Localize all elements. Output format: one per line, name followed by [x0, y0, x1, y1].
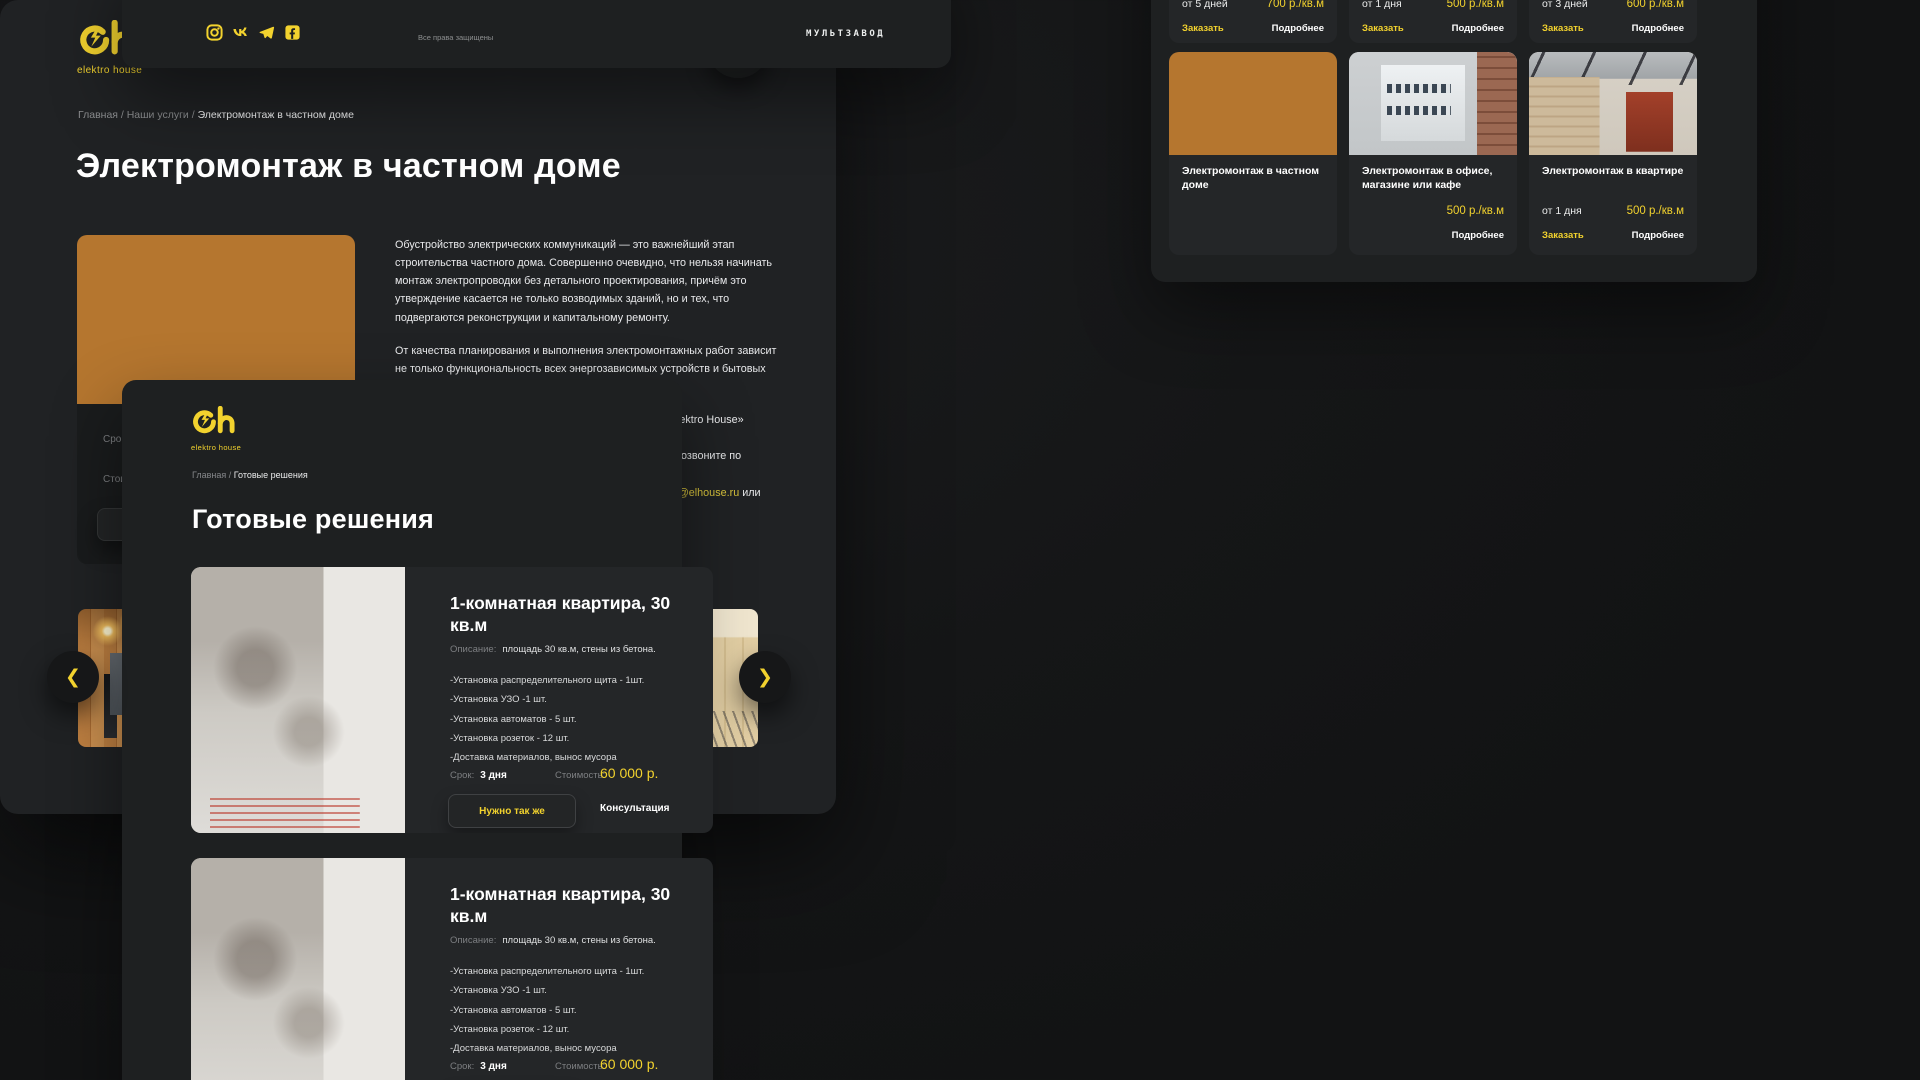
order-link[interactable]: Заказать — [1362, 23, 1404, 34]
price-text: 500 р./кв.м — [1447, 205, 1504, 217]
feature-item: -Установка автоматов - 5 шт. — [450, 1001, 644, 1020]
term-text: от 1 дня — [1542, 205, 1582, 217]
details-link[interactable]: Подробнее — [1272, 23, 1324, 34]
agency-credit[interactable]: МУЛЬТЗАВОД — [806, 29, 885, 39]
solution-title: 1-комнатная квартира, 30 кв.м — [450, 593, 690, 637]
feature-item: -Установка УЗО -1 шт. — [450, 690, 644, 709]
photo-apartment-renovation — [191, 858, 405, 1080]
price-label: Стоимость: — [555, 1061, 605, 1072]
photo-private-house — [1169, 52, 1337, 155]
logo-eh-icon — [191, 406, 239, 436]
feature-item: -Установка розеток - 12 шт. — [450, 729, 644, 748]
order-link[interactable]: Заказать — [1542, 230, 1584, 241]
price-value: 60 000 р. — [600, 1056, 658, 1072]
logo-wordmark: elektro house — [191, 443, 241, 452]
term-text: от 1 дня — [1362, 0, 1402, 10]
chevron-left-icon: ❮ — [65, 666, 81, 689]
vk-icon[interactable] — [232, 24, 249, 41]
instagram-icon[interactable] — [206, 24, 223, 41]
breadcrumb: Главная / Наши услуги / Электромонтаж в … — [78, 109, 354, 121]
photo-apartment — [1529, 52, 1697, 155]
feature-item: -Установка УЗО -1 шт. — [450, 981, 644, 1000]
consultation-button[interactable]: Консультация — [600, 803, 669, 814]
term-text: от 3 дней — [1542, 0, 1588, 10]
service-card-apartment[interactable]: Электромонтаж в квартире от 1 дня500 р./… — [1529, 52, 1697, 255]
breadcrumb: Главная / Готовые решения — [192, 470, 308, 480]
service-price-card: от 3 дней600 р./кв.м ЗаказатьПодробнее — [1529, 0, 1697, 43]
price-text: 500 р./кв.м — [1627, 205, 1684, 217]
price-text: 600 р./кв.м — [1627, 0, 1684, 10]
service-card-title: Электромонтаж в частном доме — [1182, 165, 1324, 192]
carousel-next-button[interactable]: ❯ — [739, 651, 791, 703]
footer-panel: elektro house Все права защищены МУЛЬТЗА… — [122, 0, 951, 68]
term-row: Срок:3 дня — [450, 1061, 507, 1072]
social-links — [206, 24, 301, 41]
page-title: Электромонтаж в частном доме — [76, 147, 621, 186]
breadcrumb-links[interactable]: Главная / Наши услуги / — [78, 109, 195, 121]
service-price-card: от 1 дня500 р./кв.м ЗаказатьПодробнее — [1349, 0, 1517, 43]
breadcrumb-current: Готовые решения — [234, 470, 308, 480]
term-text: от 5 дней — [1182, 0, 1228, 10]
need-same-button[interactable]: Нужно так же — [448, 794, 576, 828]
term-row: Срок:3 дня — [450, 770, 507, 781]
solution-title: 1-комнатная квартира, 30 кв.м — [450, 884, 690, 928]
solution-card: 1-комнатная квартира, 30 кв.м Описание:п… — [191, 567, 713, 833]
description-label: Описание: — [450, 644, 496, 655]
solution-card: 1-комнатная квартира, 30 кв.м Описание:п… — [191, 858, 713, 1080]
price-label: Стоимость: — [555, 770, 605, 781]
feature-item: -Установка распределительного щита - 1шт… — [450, 962, 644, 981]
solution-description: Описание:площадь 30 кв.м, стены из бетон… — [450, 644, 656, 655]
logo[interactable]: elektro house — [191, 406, 241, 452]
solutions-page-panel: elektro house Главная / Готовые решения … — [122, 380, 682, 1080]
chevron-right-icon: ❯ — [757, 666, 773, 689]
feature-item: -Установка розеток - 12 шт. — [450, 1020, 644, 1039]
solution-features: -Установка распределительного щита - 1шт… — [450, 671, 644, 767]
price-text: 700 р./кв.м — [1267, 0, 1324, 10]
breadcrumb-current: Электромонтаж в частном доме — [198, 109, 354, 121]
details-link[interactable]: Подробнее — [1452, 23, 1504, 34]
service-card-title: Электромонтаж в квартире — [1542, 165, 1684, 179]
page-title: Готовые решения — [192, 504, 434, 535]
feature-item: -Установка распределительного щита - 1шт… — [450, 671, 644, 690]
photo-apartment-renovation — [191, 567, 405, 833]
paragraph: Обустройство электрических коммуникаций … — [395, 236, 787, 327]
details-link[interactable]: Подробнее — [1452, 230, 1504, 241]
copyright-text: Все права защищены — [418, 33, 493, 42]
service-card-title: Электромонтаж в офисе, магазине или кафе — [1362, 165, 1504, 192]
order-link[interactable]: Заказать — [1542, 23, 1584, 34]
services-listing-panel: от 5 дней700 р./кв.м ЗаказатьПодробнее о… — [1151, 0, 1757, 282]
price-value: 60 000 р. — [600, 765, 658, 781]
telegram-icon[interactable] — [258, 24, 275, 41]
price-text: 500 р./кв.м — [1447, 0, 1504, 10]
service-card-private-house[interactable]: Электромонтаж в частном доме — [1169, 52, 1337, 255]
solution-description: Описание:площадь 30 кв.м, стены из бетон… — [450, 935, 656, 946]
details-link[interactable]: Подробнее — [1632, 230, 1684, 241]
breadcrumb-home[interactable]: Главная / — [192, 470, 231, 480]
service-card-office[interactable]: Электромонтаж в офисе, магазине или кафе… — [1349, 52, 1517, 255]
carousel-prev-button[interactable]: ❮ — [47, 651, 99, 703]
feature-item: -Установка автоматов - 5 шт. — [450, 710, 644, 729]
details-link[interactable]: Подробнее — [1632, 23, 1684, 34]
photo-office-fusebox — [1349, 52, 1517, 155]
order-link[interactable]: Заказать — [1182, 23, 1224, 34]
description-label: Описание: — [450, 935, 496, 946]
facebook-icon[interactable] — [284, 24, 301, 41]
photo-main-wiring — [77, 235, 355, 404]
solution-features: -Установка распределительного щита - 1шт… — [450, 962, 644, 1058]
service-price-card: от 5 дней700 р./кв.м ЗаказатьПодробнее — [1169, 0, 1337, 43]
